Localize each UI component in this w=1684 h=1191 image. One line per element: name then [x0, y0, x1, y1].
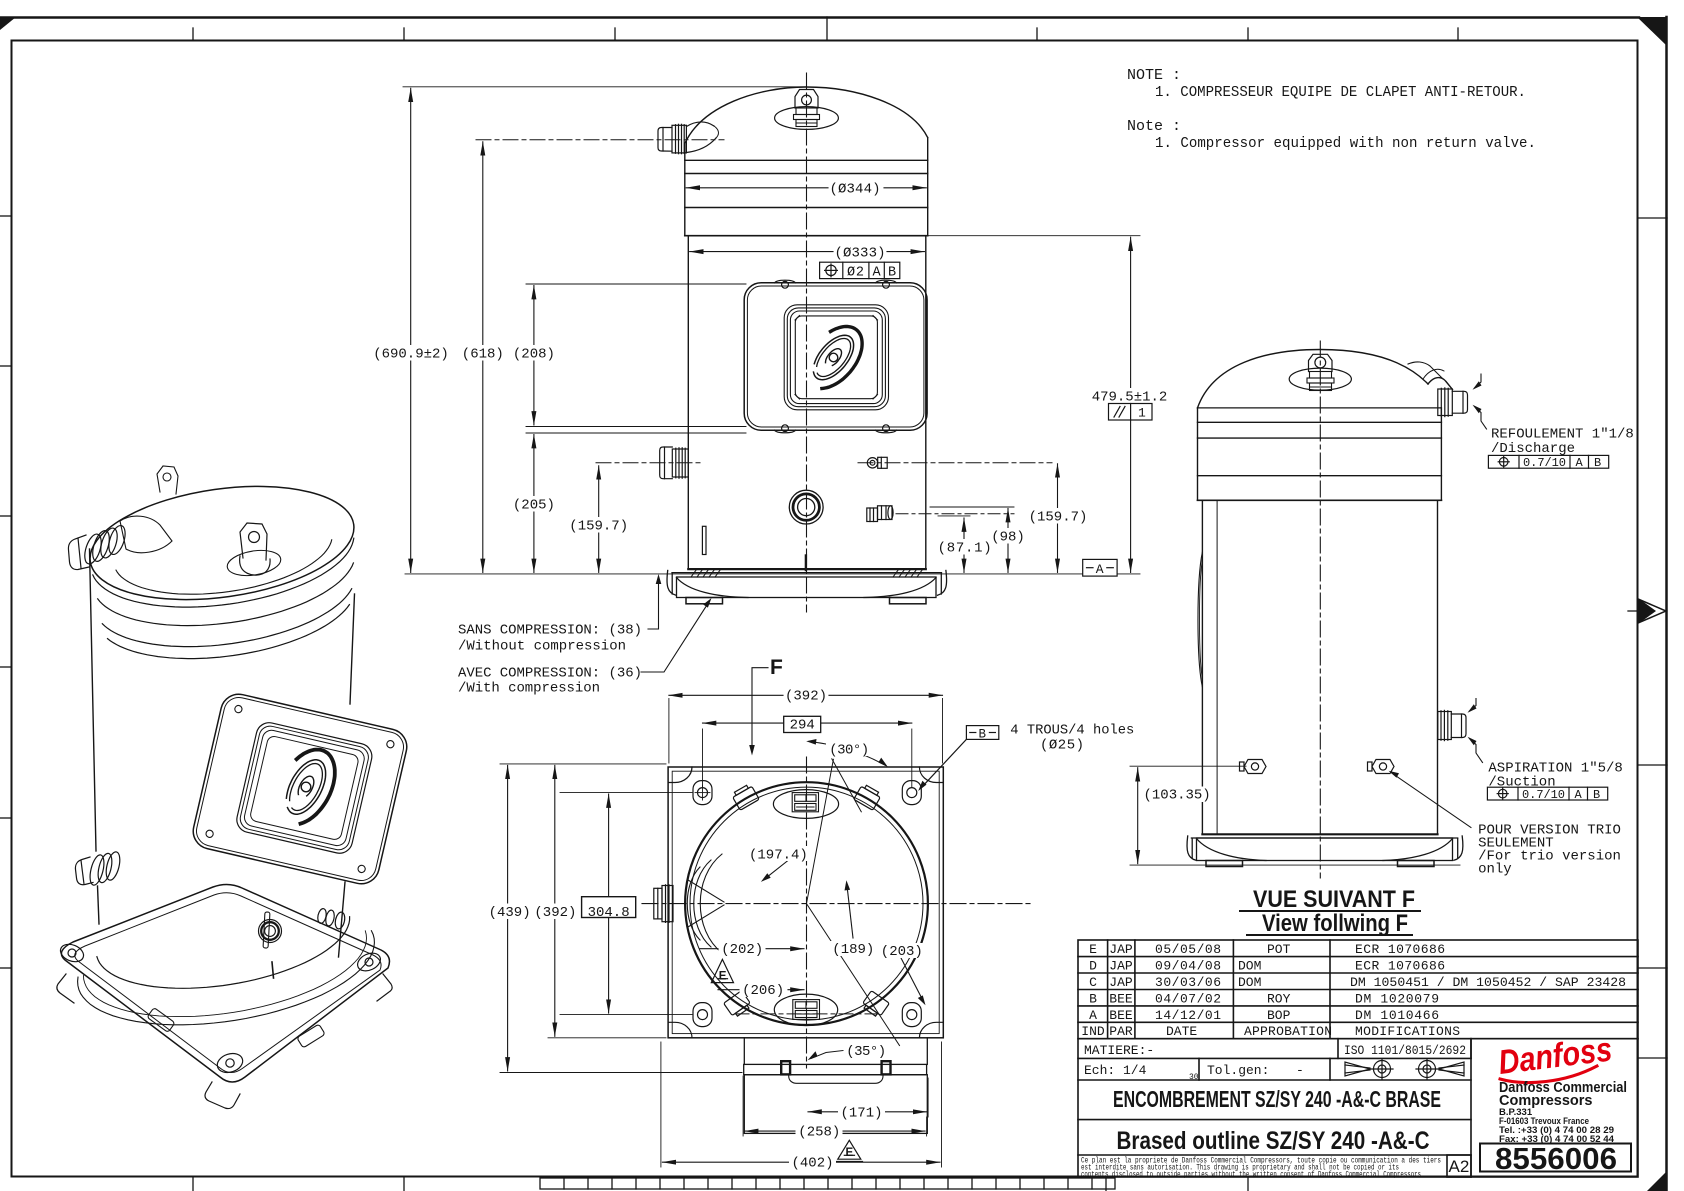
- svg-text:(159.7): (159.7): [1029, 509, 1088, 525]
- svg-text:Note :: Note :: [1127, 118, 1181, 135]
- svg-text:(205): (205): [513, 497, 555, 513]
- svg-text:BEE: BEE: [1109, 1008, 1133, 1023]
- svg-text:(87.1): (87.1): [938, 540, 992, 556]
- svg-text:A: A: [1096, 562, 1104, 577]
- svg-text:(258): (258): [798, 1125, 840, 1141]
- svg-text:A: A: [1575, 788, 1583, 802]
- svg-text:A: A: [873, 266, 882, 281]
- svg-text:DOM: DOM: [1238, 959, 1261, 974]
- svg-text:E: E: [719, 971, 727, 983]
- svg-text:BOP: BOP: [1267, 1008, 1291, 1023]
- svg-text:30/03/06: 30/03/06: [1155, 975, 1221, 990]
- svg-text:APPROBATION: APPROBATION: [1244, 1024, 1332, 1039]
- svg-text:304.8: 304.8: [588, 905, 630, 921]
- svg-text:(35°): (35°): [846, 1044, 886, 1060]
- svg-text:-: -: [1296, 1063, 1304, 1078]
- svg-text:DM 1010466: DM 1010466: [1355, 1008, 1439, 1023]
- svg-text:MATIERE:-: MATIERE:-: [1084, 1043, 1154, 1058]
- svg-text:AVEC COMPRESSION: (36): AVEC COMPRESSION: (36): [458, 665, 642, 681]
- svg-text:SANS COMPRESSION: (38): SANS COMPRESSION: (38): [458, 622, 642, 638]
- svg-text:30: 30: [1189, 1073, 1199, 1082]
- svg-text:DATE: DATE: [1166, 1024, 1197, 1039]
- svg-text:8556006: 8556006: [1495, 1141, 1617, 1176]
- svg-text:A2: A2: [1449, 1157, 1470, 1176]
- svg-text:(206): (206): [742, 983, 784, 999]
- svg-text:(Ø333): (Ø333): [835, 245, 886, 261]
- svg-text:POT: POT: [1267, 942, 1291, 957]
- svg-text:(392): (392): [534, 905, 576, 921]
- svg-text:A: A: [1576, 456, 1584, 470]
- svg-text:DOM: DOM: [1238, 975, 1261, 990]
- svg-text:(Ø344): (Ø344): [830, 182, 881, 198]
- svg-text:4 TROUS/4 holes: 4 TROUS/4 holes: [1010, 723, 1134, 739]
- svg-text:1. Compressor equipped with no: 1. Compressor equipped with non return v…: [1155, 135, 1536, 152]
- svg-text:ROY: ROY: [1267, 991, 1291, 1006]
- svg-text:JAP: JAP: [1109, 975, 1133, 990]
- svg-text:(402): (402): [792, 1156, 834, 1172]
- svg-text:ENCOMBREMENT SZ/SY 240 -A&-C B: ENCOMBREMENT SZ/SY 240 -A&-C BRASE: [1113, 1086, 1441, 1112]
- svg-text:(392): (392): [785, 689, 827, 705]
- svg-text:F: F: [770, 656, 783, 679]
- svg-text:C: C: [1089, 975, 1097, 990]
- svg-text:B: B: [979, 727, 987, 741]
- svg-text:(203): (203): [881, 944, 923, 960]
- svg-text:B: B: [1089, 991, 1097, 1006]
- svg-text:JAP: JAP: [1109, 959, 1133, 974]
- svg-text:DM 1020079: DM 1020079: [1355, 991, 1439, 1006]
- svg-text:(98): (98): [991, 529, 1025, 545]
- svg-text:294: 294: [790, 718, 815, 734]
- svg-text:(690.9±2): (690.9±2): [373, 346, 449, 362]
- svg-text:ECR 1070686: ECR 1070686: [1355, 942, 1445, 957]
- svg-text:/Discharge: /Discharge: [1491, 441, 1575, 457]
- svg-text:0.7/10: 0.7/10: [1522, 788, 1565, 802]
- svg-text:1. COMPRESSEUR EQUIPE DE CLAPE: 1. COMPRESSEUR EQUIPE DE CLAPET ANTI-RET…: [1155, 84, 1526, 101]
- svg-text:Brased outline SZ/SY 240 -A&-C: Brased outline SZ/SY 240 -A&-C: [1117, 1127, 1430, 1155]
- svg-text:B: B: [1593, 788, 1600, 802]
- svg-text:(189): (189): [832, 942, 874, 958]
- svg-text:A: A: [1089, 1008, 1097, 1023]
- svg-text:(439): (439): [489, 905, 531, 921]
- svg-text:(171): (171): [841, 1105, 883, 1121]
- svg-text:D: D: [1089, 959, 1097, 974]
- svg-text:(208): (208): [513, 346, 555, 362]
- svg-text:/With compression: /With compression: [458, 680, 600, 696]
- svg-text:NOTE :: NOTE :: [1127, 67, 1181, 84]
- svg-text:MODIFICATIONS: MODIFICATIONS: [1355, 1024, 1460, 1039]
- svg-text:1: 1: [1138, 406, 1146, 421]
- svg-text:09/04/08: 09/04/08: [1155, 959, 1221, 974]
- svg-text:IND: IND: [1081, 1024, 1105, 1039]
- svg-text:(618): (618): [462, 346, 504, 362]
- svg-text:E: E: [1089, 942, 1097, 957]
- svg-text:Ø2: Ø2: [847, 266, 864, 281]
- svg-text:E: E: [846, 1147, 854, 1159]
- svg-text:(202): (202): [721, 942, 763, 958]
- svg-text:(197.4): (197.4): [749, 848, 808, 864]
- svg-text:View follwing F: View follwing F: [1262, 910, 1408, 937]
- svg-text:479.5±1.2: 479.5±1.2: [1092, 389, 1168, 405]
- svg-text:VUE SUIVANT F: VUE SUIVANT F: [1253, 886, 1415, 913]
- svg-text:(Ø25): (Ø25): [1040, 738, 1084, 754]
- svg-text:B: B: [1594, 456, 1601, 470]
- svg-text:(30°): (30°): [829, 743, 869, 759]
- svg-text:05/05/08: 05/05/08: [1155, 942, 1221, 957]
- svg-text:B: B: [888, 266, 896, 281]
- svg-text:14/12/01: 14/12/01: [1155, 1008, 1221, 1023]
- svg-text:ISO 1101/8015/2692: ISO 1101/8015/2692: [1344, 1043, 1466, 1058]
- svg-text:BEE: BEE: [1109, 991, 1133, 1006]
- svg-text:only: only: [1478, 862, 1512, 878]
- svg-text:(103.35): (103.35): [1144, 788, 1211, 804]
- svg-text:ECR 1070686: ECR 1070686: [1355, 959, 1445, 974]
- svg-text:contents disclosed to outside: contents disclosed to outside parties wi…: [1081, 1170, 1421, 1180]
- svg-text:0.7/10: 0.7/10: [1523, 456, 1566, 470]
- svg-text:PAR: PAR: [1109, 1024, 1133, 1039]
- svg-text:(159.7): (159.7): [569, 519, 628, 535]
- svg-text:Ech: 1/4: Ech: 1/4: [1084, 1063, 1147, 1078]
- svg-text:Tol.gen:: Tol.gen:: [1207, 1063, 1269, 1078]
- svg-text:DM 1050451 / DM 1050452 / SAP: DM 1050451 / DM 1050452 / SAP 23428: [1350, 975, 1626, 990]
- svg-text:04/07/02: 04/07/02: [1155, 991, 1221, 1006]
- svg-text:JAP: JAP: [1109, 942, 1133, 957]
- svg-text:/Without compression: /Without compression: [458, 638, 626, 654]
